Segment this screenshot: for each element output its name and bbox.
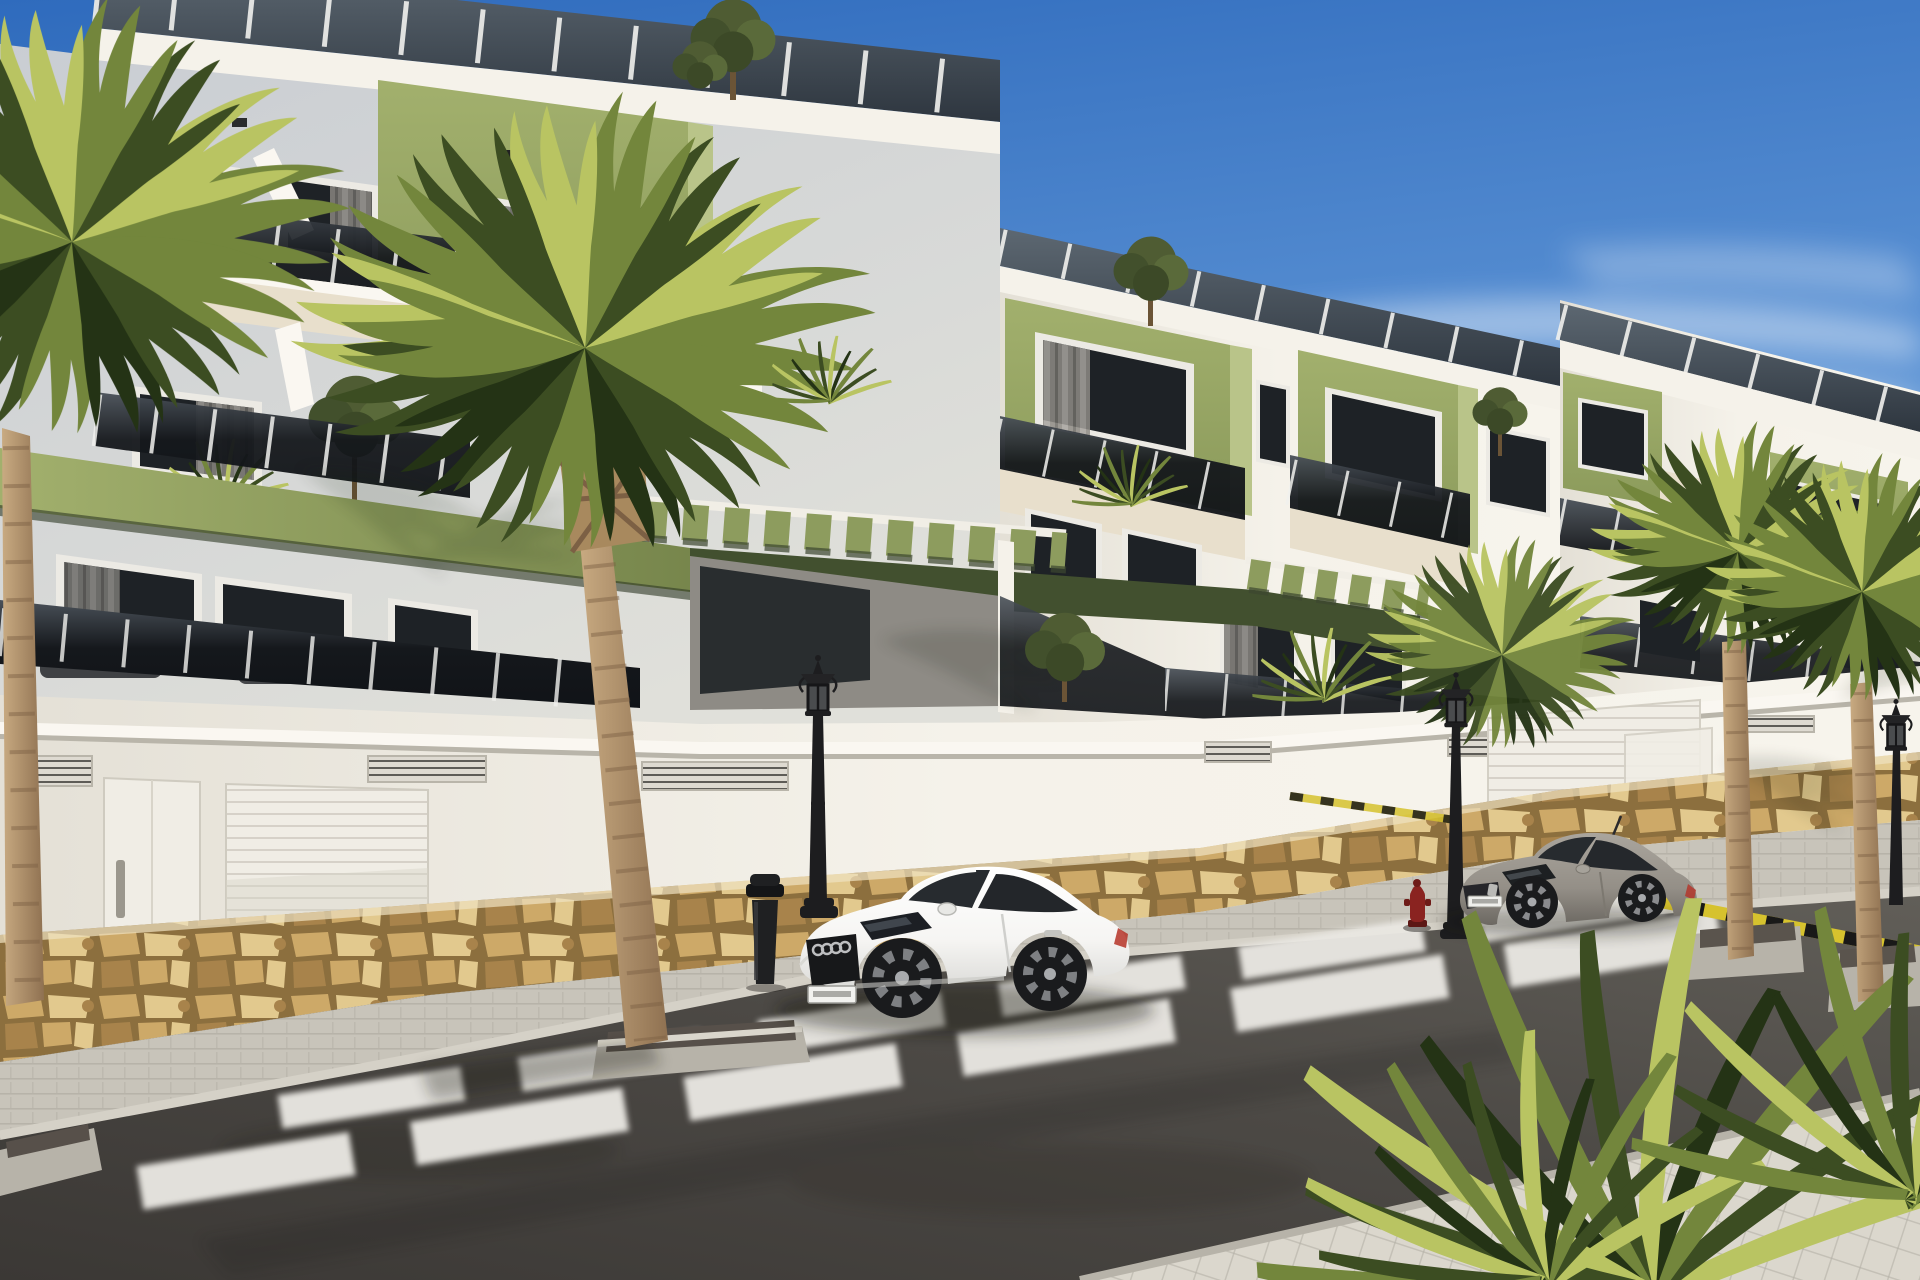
- vent-grille-2: [368, 756, 486, 782]
- grey-coupe-plate-blur: [1472, 899, 1498, 904]
- far-window-a: [1580, 400, 1646, 478]
- vent-grille-4: [1205, 742, 1271, 762]
- scene-svg: [0, 0, 1920, 1280]
- white-coupe-plate-blur: [813, 991, 851, 997]
- grey-coupe-mirror: [1576, 865, 1590, 874]
- white-coupe-handle: [1044, 930, 1062, 936]
- mid-curtain-a: [1043, 340, 1090, 436]
- white-coupe-mirror: [938, 903, 956, 915]
- grey-coupe-front-wheel: [1506, 876, 1558, 928]
- white-coupe-rear-wheel: [1013, 937, 1087, 1011]
- white-coupe-grille: [806, 934, 860, 986]
- render-scene: [0, 0, 1920, 1280]
- white-coupe-front-wheel: [862, 938, 942, 1018]
- vent-grille-3: [642, 762, 788, 790]
- grey-coupe-rear-wheel: [1618, 874, 1666, 922]
- vent-grille-7: [1744, 716, 1814, 732]
- mid-window-c: [1488, 428, 1548, 515]
- mid-narrow-window: [1258, 382, 1288, 466]
